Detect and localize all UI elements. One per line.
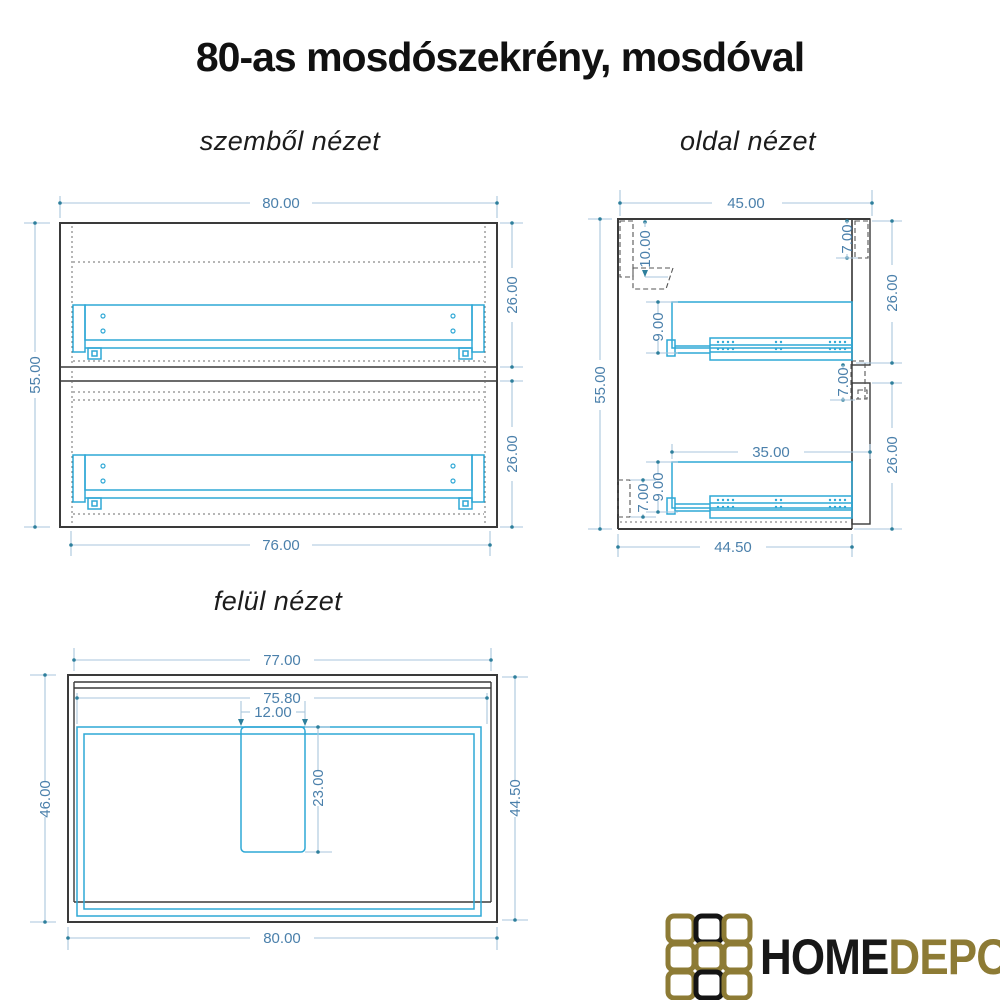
dim-front-inner-width: 76.00: [262, 537, 300, 554]
top-view-drawing: 77.00 75.80 12.00 23.00: [30, 648, 528, 950]
front-hidden-edges: [72, 226, 485, 524]
dim-top-cabinet-depth: 44.50: [507, 779, 524, 817]
brand-logo: HOMEDEPO: [668, 916, 1000, 998]
dim-side-lower-front-height: 26.00: [884, 436, 901, 474]
top-carcass-outline: [77, 727, 481, 916]
side-dimensions: 45.00 55.00 10.00 7.00: [588, 190, 902, 557]
dim-front-upper-drawer-height: 26.00: [504, 276, 521, 314]
technical-drawing: 80.00 55.00 26.00 26.00: [0, 0, 1000, 1000]
dim-front-overall-height: 55.00: [27, 356, 44, 394]
dim-side-carcass-depth: 44.50: [714, 539, 752, 556]
front-lower-drawer-hardware: [73, 455, 484, 509]
side-lower-slide-hardware: [667, 462, 852, 518]
side-view-drawing: 45.00 55.00 10.00 7.00: [588, 190, 902, 557]
siphon-cutout: [241, 727, 305, 852]
logo-grid-icon: [668, 916, 750, 998]
dim-side-overall-depth: 45.00: [727, 195, 765, 212]
dim-top-cutout-width: 12.00: [254, 704, 292, 721]
front-view-drawing: 80.00 55.00 26.00 26.00: [24, 195, 523, 556]
dim-front-overall-width: 80.00: [262, 195, 300, 212]
dim-side-lower-slide-height: 9.00: [650, 472, 667, 501]
dim-side-bottom-rail-height: 7.00: [635, 483, 652, 512]
dim-top-basin-depth: 46.00: [37, 780, 54, 818]
dim-top-cutout-depth: 23.00: [310, 769, 327, 807]
dim-top-basin-width: 80.00: [263, 930, 301, 947]
front-dimensions: 80.00 55.00 26.00 26.00: [24, 195, 523, 556]
dim-side-hanger-offset: 10.00: [637, 230, 654, 268]
dim-side-upper-front-height: 26.00: [884, 274, 901, 312]
logo-word-depo: DEPO: [888, 928, 1000, 984]
dim-side-top-rail-height: 7.00: [839, 224, 856, 253]
logo-wordmark: HOMEDEPO: [760, 928, 1000, 984]
front-upper-drawer-hardware: [73, 305, 484, 359]
dim-top-cabinet-width: 77.00: [263, 652, 301, 669]
logo-word-home: HOME: [760, 928, 888, 984]
dim-side-upper-slide-height: 9.00: [650, 312, 667, 341]
dim-side-mid-rail-height: 7.00: [835, 367, 852, 396]
front-carcass-outline: [60, 223, 497, 527]
drawing-sheet: 80-as mosdószekrény, mosdóval szemből né…: [0, 0, 1000, 1000]
dim-front-lower-drawer-height: 26.00: [504, 435, 521, 473]
side-upper-slide-hardware: [667, 302, 852, 360]
top-dimensions: 77.00 75.80 12.00 23.00: [30, 648, 528, 950]
dim-side-overall-height: 55.00: [592, 366, 609, 404]
dim-side-slide-length: 35.00: [752, 444, 790, 461]
